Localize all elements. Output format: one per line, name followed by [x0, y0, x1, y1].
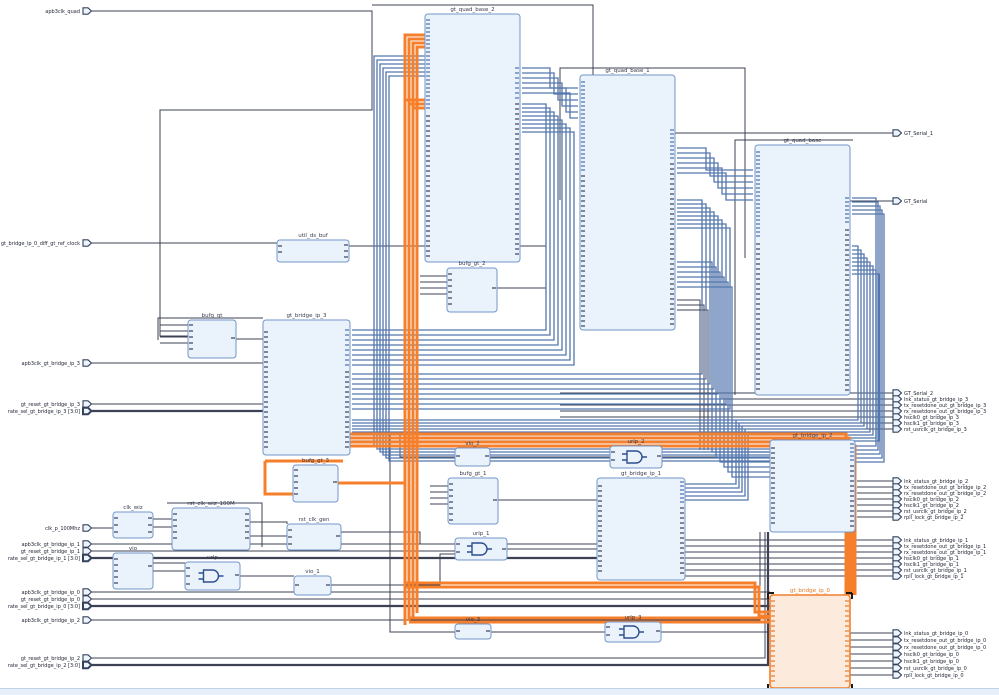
input-port-icon[interactable]: [83, 240, 92, 246]
highlighted-net-wire[interactable]: [265, 461, 293, 494]
block-title-rst_clk_wiz_100M: rst_clk_wiz_100M: [187, 501, 235, 507]
input-port-label: gt_bridge_ip_0_diff_gt_ref_clock: [1, 241, 80, 247]
block-body-vio_3[interactable]: [455, 624, 491, 639]
input-port-icon[interactable]: [83, 655, 92, 661]
output-port-icon[interactable]: [893, 426, 902, 432]
net-wire[interactable]: [92, 11, 372, 336]
highlighted-net-wire[interactable]: [405, 587, 770, 616]
block-gt_quad_base_1[interactable]: gt_quad_base_1: [580, 68, 675, 330]
block-body-bufg_gt_3[interactable]: [293, 465, 338, 502]
block-title-bufg_gt: bufg_gt: [202, 313, 224, 319]
block-title-gt_quad_base_1: gt_quad_base_1: [605, 68, 649, 74]
input-port-icon[interactable]: [83, 548, 92, 554]
output-port-icon[interactable]: [893, 549, 902, 555]
input-port-label: gt_reset_gt_bridge_ip_3: [21, 402, 80, 408]
block-bufg_gt[interactable]: bufg_gt: [188, 313, 236, 358]
input-port-label: apb3clk_quad: [45, 9, 80, 15]
input-port-icon[interactable]: [83, 617, 92, 623]
block-title-gt_bridge_ip_3: gt_bridge_ip_3: [286, 313, 327, 319]
block-gt_bridge_ip_3[interactable]: gt_bridge_ip_3: [263, 313, 350, 455]
input-port-icon[interactable]: [83, 525, 92, 531]
output-port-label: tx_resetdone_out_gt_bridge_ip_0: [904, 638, 986, 644]
bundle-wire[interactable]: [677, 148, 753, 170]
block-body-rst_clk_wiz_100M[interactable]: [172, 508, 250, 550]
output-port-icon[interactable]: [893, 658, 902, 664]
bundle-wire[interactable]: [677, 173, 753, 200]
output-port-icon[interactable]: [893, 390, 902, 396]
block-gt_quad_base_2[interactable]: gt_quad_base_2: [425, 7, 520, 262]
block-body-vio_2[interactable]: [455, 448, 490, 466]
block-gt_quad_base[interactable]: gt_quad_base: [755, 138, 850, 395]
block-body-vio_1[interactable]: [294, 576, 331, 595]
block-title-vio_1: vio_1: [305, 569, 319, 575]
output-port-icon[interactable]: [893, 514, 902, 520]
block-body-rst_clk_gen[interactable]: [287, 524, 341, 550]
output-port-label: rpll_lock_gt_bridge_ip_1: [904, 574, 964, 580]
block-title-urlp_3: urlp_3: [624, 615, 642, 621]
block-title-gt_quad_base: gt_quad_base: [783, 138, 822, 144]
block-body-vio[interactable]: [113, 553, 153, 589]
input-port-icon[interactable]: [83, 541, 92, 547]
block-body-urlp[interactable]: [185, 562, 240, 590]
block-body-gt_bridge_ip_0[interactable]: [770, 595, 850, 688]
input-port-label: clk_p_100Mhz: [45, 526, 80, 532]
output-port-icon[interactable]: [893, 496, 902, 502]
input-port-icon[interactable]: [83, 360, 92, 366]
block-title-rst_clk_gen: rst_clk_gen: [299, 517, 330, 523]
block-title-urlp_1: urlp_1: [472, 531, 489, 537]
block-bufg_gt_3[interactable]: bufg_gt_3: [293, 458, 338, 502]
input-port-icon[interactable]: [83, 401, 92, 407]
block-body-urlp_1[interactable]: [455, 538, 507, 560]
input-port-icon[interactable]: [83, 555, 92, 561]
input-port-icon[interactable]: [83, 662, 92, 668]
block-title-util_ds_buf: util_ds_buf: [298, 233, 329, 239]
block-body-gt_bridge_ip_3[interactable]: [263, 320, 350, 455]
block-vio_1[interactable]: vio_1: [294, 569, 331, 595]
block-title-urlp_2: urlp_2: [627, 439, 644, 445]
schematic-canvas: gt_quad_base_2gt_quad_base_1gt_quad_base…: [0, 0, 999, 695]
block-urlp_1[interactable]: urlp_1: [455, 531, 507, 560]
block-bufg_gt_2[interactable]: bufg_gt_2: [447, 261, 497, 312]
block-body-clk_wiz[interactable]: [113, 512, 153, 538]
output-port-label: lnk_status_gt_bridge_ip_0: [904, 631, 968, 637]
block-gt_bridge_ip_2[interactable]: gt_bridge_ip_2: [770, 433, 855, 532]
block-title-gt_bridge_ip_2: gt_bridge_ip_2: [792, 433, 832, 439]
bundle-wire[interactable]: [852, 202, 878, 450]
output-port-icon[interactable]: [893, 396, 902, 402]
block-clk_wiz[interactable]: clk_wiz: [113, 505, 153, 538]
net-wire[interactable]: [250, 522, 287, 524]
bundle-wire[interactable]: [677, 168, 753, 194]
block-body-util_ds_buf[interactable]: [277, 240, 349, 262]
bottom-strip: [0, 688, 999, 695]
block-body-bufg_gt_1[interactable]: [448, 478, 498, 524]
block-title-bufg_gt_2: bufg_gt_2: [458, 261, 485, 267]
input-port-icon[interactable]: [83, 8, 92, 14]
input-port-label: gt_reset_gt_bridge_ip_1: [21, 549, 80, 555]
output-port-icon[interactable]: [893, 414, 902, 420]
block-body-gt_bridge_ip_2[interactable]: [770, 440, 855, 532]
output-port-icon[interactable]: [893, 408, 902, 414]
output-port-icon[interactable]: [893, 573, 902, 579]
input-port-label: gt_reset_gt_bridge_ip_2: [21, 656, 80, 662]
block-body-bufg_gt[interactable]: [188, 320, 236, 358]
input-port-label: rate_sel_gt_bridge_ip_0 [3:0]: [8, 604, 80, 610]
output-port-icon[interactable]: [893, 537, 902, 543]
output-port-icon[interactable]: [893, 555, 902, 561]
input-port-label: rate_sel_gt_bridge_ip_1 [3:0]: [8, 556, 80, 562]
output-port-label: GT_Serial: [904, 199, 927, 205]
output-port-icon[interactable]: [893, 508, 902, 514]
net-wire[interactable]: [341, 532, 455, 544]
output-port-label: hsclk0_gt_bridge_ip_0: [904, 652, 959, 658]
output-port-icon[interactable]: [893, 198, 902, 204]
block-rst_clk_wiz_100M[interactable]: rst_clk_wiz_100M: [172, 501, 250, 550]
input-port-icon[interactable]: [83, 596, 92, 602]
output-port-icon[interactable]: [893, 637, 902, 643]
block-title-bufg_gt_3: bufg_gt_3: [302, 458, 330, 464]
output-port-icon[interactable]: [893, 672, 902, 678]
input-port-icon[interactable]: [83, 408, 92, 414]
output-port-icon[interactable]: [893, 478, 902, 484]
output-port-icon[interactable]: [893, 402, 902, 408]
output-port-icon[interactable]: [893, 630, 902, 636]
output-port-icon[interactable]: [893, 130, 902, 136]
output-port-icon[interactable]: [893, 484, 902, 490]
block-util_ds_buf[interactable]: util_ds_buf: [277, 233, 349, 262]
output-port-icon[interactable]: [893, 644, 902, 650]
block-gt_bridge_ip_1[interactable]: gt_bridge_ip_1: [597, 471, 685, 580]
input-port-icon[interactable]: [83, 603, 92, 609]
output-port-label: rx_resetdone_out_gt_bridge_ip_0: [904, 645, 986, 651]
output-port-label: rpll_lock_gt_bridge_ip_2: [904, 515, 964, 521]
block-title-bufg_gt_1: bufg_gt_1: [459, 471, 486, 477]
input-port-label: apb3clk_gt_bridge_ip_1: [21, 542, 80, 548]
output-port-icon[interactable]: [893, 665, 902, 671]
output-port-label: rpll_lock_gt_bridge_ip_0: [904, 673, 964, 679]
block-body-urlp_3[interactable]: [605, 622, 661, 642]
output-port-icon[interactable]: [893, 502, 902, 508]
bundle-wire[interactable]: [685, 426, 742, 492]
output-port-icon[interactable]: [893, 490, 902, 496]
block-bufg_gt_1[interactable]: bufg_gt_1: [448, 471, 498, 524]
block-rst_clk_gen[interactable]: rst_clk_gen: [287, 517, 341, 550]
output-port-icon[interactable]: [893, 567, 902, 573]
output-port-icon[interactable]: [893, 420, 902, 426]
block-title-gt_quad_base_2: gt_quad_base_2: [450, 7, 494, 13]
input-port-label: rate_sel_gt_bridge_ip_3 [3:0]: [8, 409, 80, 415]
block-title-urlp: urlp: [207, 555, 218, 561]
output-port-label: rst_usrclk_gt_bridge_ip_0: [904, 666, 967, 672]
net-wire[interactable]: [677, 300, 700, 450]
block-body-urlp_2[interactable]: [610, 446, 662, 468]
block-urlp[interactable]: urlp: [185, 555, 240, 590]
block-body-gt_bridge_ip_1[interactable]: [597, 478, 685, 580]
block-body-gt_quad_base_2[interactable]: [425, 14, 520, 262]
output-port-icon[interactable]: [893, 561, 902, 567]
input-port-label: apb3clk_gt_bridge_ip_2: [21, 618, 80, 624]
output-port-label: hsclk1_gt_bridge_ip_0: [904, 659, 959, 665]
block-title-gt_bridge_ip_1: gt_bridge_ip_1: [621, 471, 661, 477]
block-title-vio_2: vio_2: [465, 441, 479, 447]
output-port-icon[interactable]: [893, 651, 902, 657]
schematic-svg: gt_quad_base_2gt_quad_base_1gt_quad_base…: [0, 0, 999, 695]
block-title-gt_bridge_ip_0: gt_bridge_ip_0: [790, 588, 831, 594]
block-title-clk_wiz: clk_wiz: [123, 505, 143, 511]
output-port-label: GT_Serial_1: [904, 131, 933, 137]
input-port-label: gt_reset_gt_bridge_ip_0: [21, 597, 80, 603]
block-title-vio: vio: [129, 546, 138, 552]
block-body-gt_quad_base_1[interactable]: [580, 75, 675, 330]
output-port-label: rst_usrclk_gt_bridge_ip_3: [904, 427, 967, 433]
block-title-vio_3: vio_3: [466, 617, 481, 623]
input-port-icon[interactable]: [83, 589, 92, 595]
block-gt_bridge_ip_0[interactable]: gt_bridge_ip_0: [768, 588, 852, 690]
output-port-icon[interactable]: [893, 543, 902, 549]
block-vio[interactable]: vio: [113, 546, 153, 589]
block-body-bufg_gt_2[interactable]: [447, 268, 497, 312]
input-port-label: rate_sel_gt_bridge_ip_2 [3:0]: [8, 663, 80, 669]
input-port-label: apb3clk_gt_bridge_ip_0: [21, 590, 80, 596]
block-body-gt_quad_base[interactable]: [755, 145, 850, 395]
input-port-label: apb3clk_gt_bridge_ip_3: [21, 361, 80, 367]
